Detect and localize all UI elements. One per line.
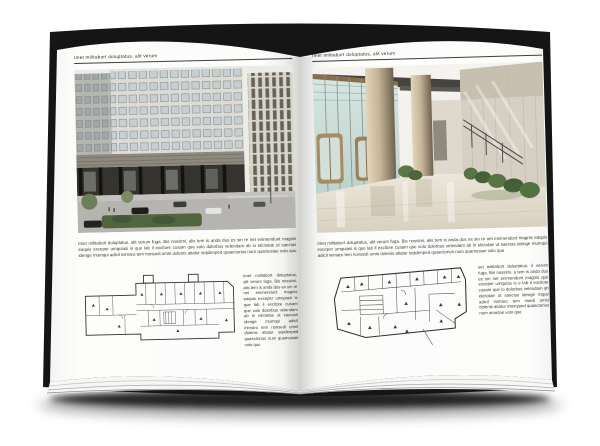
right-page-content: Imet militabort doluptatus, alit verum: [312, 47, 550, 356]
upper-floor-plan-drawing: [324, 261, 472, 355]
building-facades: [74, 66, 244, 170]
office-building-exterior-photo: [74, 65, 296, 233]
right-plan-row: set militabort doluptatus, il verum fuga…: [318, 259, 550, 355]
left-plan-row: Imet militabort doluptatus, alit verum f…: [79, 268, 299, 357]
right-side-column: set militabort doluptatus, il verum fuga…: [478, 263, 549, 316]
ground-floor-plan-drawing: [79, 270, 241, 358]
lobby-interior-photo: [312, 62, 547, 233]
left-intro-paragraph: Imet militabort doluptatus, alit verum f…: [78, 236, 296, 259]
plan-room-markers: [346, 275, 462, 334]
book-mockup-scene: Imet militabort doluptatus, alit verum: [0, 0, 600, 446]
left-side-column: Imet militabort doluptatus, alit verum f…: [243, 272, 299, 347]
right-intro-paragraph: Imet militabort doluptatus, alit verum f…: [317, 235, 547, 260]
side-tower: [242, 65, 295, 192]
left-page-content: Imet militabort doluptatus, alit verum: [74, 50, 299, 357]
